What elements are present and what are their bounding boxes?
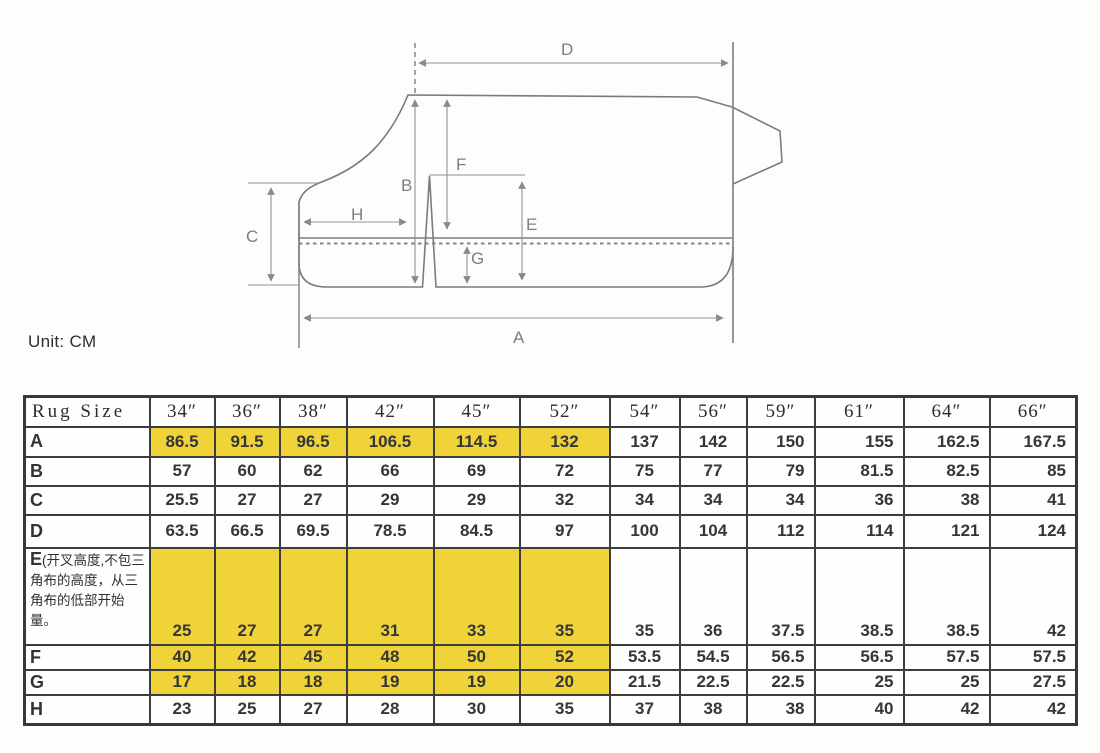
table-cell: 155 <box>815 427 904 457</box>
table-cell: 50 <box>434 645 520 670</box>
table-cell: 56.5 <box>747 645 815 670</box>
table-cell: 42 <box>215 645 280 670</box>
table-cell: 112 <box>747 515 815 548</box>
table-cell: 82.5 <box>904 457 990 486</box>
table-cell: 121 <box>904 515 990 548</box>
table-cell: 41 <box>990 486 1077 515</box>
table-cell: 114.5 <box>434 427 520 457</box>
table-cell: 42 <box>990 548 1077 645</box>
table-cell: 42 <box>904 695 990 725</box>
table-cell: 27 <box>280 486 347 515</box>
size-table: Rug Size34″36″38″42″45″52″54″56″59″61″64… <box>23 395 1078 726</box>
table-cell: 27 <box>215 548 280 645</box>
table-cell: 38 <box>904 486 990 515</box>
unit-label: Unit: CM <box>28 332 97 352</box>
rug-measurement-diagram: D A B C H F E G <box>0 0 820 370</box>
table-cell: 27 <box>280 695 347 725</box>
table-cell: 84.5 <box>434 515 520 548</box>
table-cell: 142 <box>680 427 747 457</box>
column-header: 59″ <box>747 397 815 427</box>
row-label: G <box>25 670 150 695</box>
column-header: 56″ <box>680 397 747 427</box>
table-cell: 25 <box>815 670 904 695</box>
row-label: B <box>25 457 150 486</box>
table-cell: 167.5 <box>990 427 1077 457</box>
table-cell: 72 <box>520 457 610 486</box>
dim-label-d: D <box>561 41 573 58</box>
table-cell: 18 <box>215 670 280 695</box>
dim-label-a: A <box>513 329 524 346</box>
table-cell: 37 <box>610 695 680 725</box>
column-header: 66″ <box>990 397 1077 427</box>
table-cell: 124 <box>990 515 1077 548</box>
table-cell: 38 <box>747 695 815 725</box>
table-cell: 34 <box>680 486 747 515</box>
table-cell: 34 <box>610 486 680 515</box>
table-cell: 66 <box>347 457 434 486</box>
table-cell: 75 <box>610 457 680 486</box>
table-cell: 40 <box>815 695 904 725</box>
column-header: 36″ <box>215 397 280 427</box>
dim-label-h: H <box>351 206 363 223</box>
table-cell: 57.5 <box>990 645 1077 670</box>
table-cell: 104 <box>680 515 747 548</box>
column-header: 61″ <box>815 397 904 427</box>
table-cell: 38 <box>680 695 747 725</box>
table-cell: 79 <box>747 457 815 486</box>
table-cell: 91.5 <box>215 427 280 457</box>
table-row: D63.566.569.578.584.59710010411211412112… <box>25 515 1077 548</box>
table-cell: 38.5 <box>904 548 990 645</box>
table-cell: 60 <box>215 457 280 486</box>
table-header-row: Rug Size34″36″38″42″45″52″54″56″59″61″64… <box>25 397 1077 427</box>
table-cell: 27 <box>280 548 347 645</box>
column-header: 64″ <box>904 397 990 427</box>
table-cell: 34 <box>747 486 815 515</box>
table-row: F40424548505253.554.556.556.557.557.5 <box>25 645 1077 670</box>
table-cell: 22.5 <box>680 670 747 695</box>
table-cell: 17 <box>150 670 215 695</box>
table-cell: 162.5 <box>904 427 990 457</box>
table-cell: 19 <box>347 670 434 695</box>
column-header: 34″ <box>150 397 215 427</box>
table-cell: 77 <box>680 457 747 486</box>
table-cell: 81.5 <box>815 457 904 486</box>
table-cell: 36 <box>815 486 904 515</box>
table-cell: 28 <box>347 695 434 725</box>
table-cell: 62 <box>280 457 347 486</box>
table-cell: 69.5 <box>280 515 347 548</box>
table-cell: 25 <box>215 695 280 725</box>
column-header: 54″ <box>610 397 680 427</box>
row-label: C <box>25 486 150 515</box>
table-cell: 114 <box>815 515 904 548</box>
dim-label-e: E <box>526 216 537 233</box>
table-cell: 48 <box>347 645 434 670</box>
dim-label-f: F <box>456 156 466 173</box>
table-cell: 150 <box>747 427 815 457</box>
table-cell: 25 <box>904 670 990 695</box>
table-cell: 31 <box>347 548 434 645</box>
row-label: H <box>25 695 150 725</box>
table-cell: 132 <box>520 427 610 457</box>
table-cell: 35 <box>520 695 610 725</box>
table-cell: 37.5 <box>747 548 815 645</box>
header-rug-size: Rug Size <box>25 397 150 427</box>
table-cell: 54.5 <box>680 645 747 670</box>
table-row: G17181819192021.522.522.5252527.5 <box>25 670 1077 695</box>
dim-label-g: G <box>471 250 484 267</box>
tail-flap-outline <box>732 107 782 184</box>
table-cell: 19 <box>434 670 520 695</box>
table-row: E(开叉高度,不包三角布的高度，从三角布的低部开始量。2527273133353… <box>25 548 1077 645</box>
table-row: C25.52727292932343434363841 <box>25 486 1077 515</box>
table-cell: 29 <box>347 486 434 515</box>
column-header: 45″ <box>434 397 520 427</box>
row-label: A <box>25 427 150 457</box>
table-cell: 33 <box>434 548 520 645</box>
table-cell: 63.5 <box>150 515 215 548</box>
table-cell: 30 <box>434 695 520 725</box>
table-cell: 25.5 <box>150 486 215 515</box>
table-cell: 27.5 <box>990 670 1077 695</box>
row-label: D <box>25 515 150 548</box>
table-cell: 27 <box>215 486 280 515</box>
table-cell: 96.5 <box>280 427 347 457</box>
table-cell: 52 <box>520 645 610 670</box>
table-cell: 20 <box>520 670 610 695</box>
column-header: 52″ <box>520 397 610 427</box>
table-cell: 66.5 <box>215 515 280 548</box>
table-cell: 106.5 <box>347 427 434 457</box>
table-cell: 57 <box>150 457 215 486</box>
rug-outline <box>299 95 733 287</box>
row-label: E(开叉高度,不包三角布的高度，从三角布的低部开始量。 <box>25 548 150 645</box>
table-cell: 56.5 <box>815 645 904 670</box>
dim-label-c: C <box>246 228 258 245</box>
table-cell: 23 <box>150 695 215 725</box>
row-label: F <box>25 645 150 670</box>
table-row: H232527283035373838404242 <box>25 695 1077 725</box>
table-cell: 32 <box>520 486 610 515</box>
table-cell: 97 <box>520 515 610 548</box>
table-cell: 69 <box>434 457 520 486</box>
table-cell: 42 <box>990 695 1077 725</box>
table-cell: 38.5 <box>815 548 904 645</box>
table-cell: 57.5 <box>904 645 990 670</box>
column-header: 42″ <box>347 397 434 427</box>
table-cell: 21.5 <box>610 670 680 695</box>
table-cell: 29 <box>434 486 520 515</box>
table-cell: 40 <box>150 645 215 670</box>
table-cell: 137 <box>610 427 680 457</box>
table-cell: 18 <box>280 670 347 695</box>
table-cell: 36 <box>680 548 747 645</box>
table-row: A86.591.596.5106.5114.513213714215015516… <box>25 427 1077 457</box>
table-cell: 78.5 <box>347 515 434 548</box>
table-cell: 86.5 <box>150 427 215 457</box>
table-cell: 35 <box>610 548 680 645</box>
dim-label-b: B <box>401 177 412 194</box>
table-cell: 85 <box>990 457 1077 486</box>
table-cell: 100 <box>610 515 680 548</box>
table-body: A86.591.596.5106.5114.513213714215015516… <box>25 427 1077 725</box>
column-header: 38″ <box>280 397 347 427</box>
table-cell: 35 <box>520 548 610 645</box>
table-cell: 53.5 <box>610 645 680 670</box>
table-row: B57606266697275777981.582.585 <box>25 457 1077 486</box>
table-cell: 45 <box>280 645 347 670</box>
table-cell: 22.5 <box>747 670 815 695</box>
table-cell: 25 <box>150 548 215 645</box>
